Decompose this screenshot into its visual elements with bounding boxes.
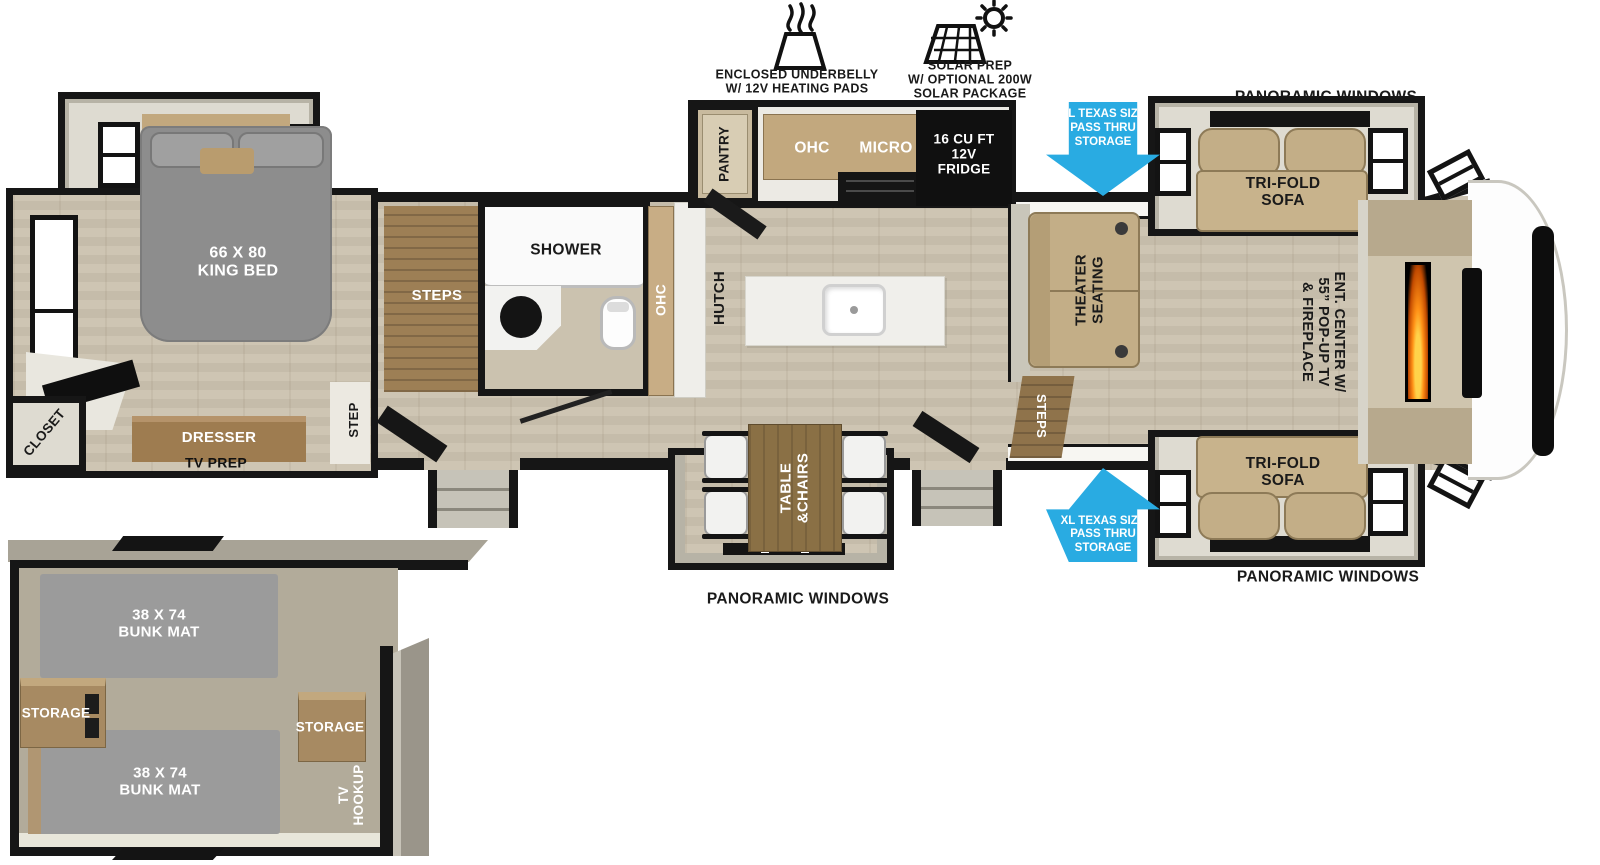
sofa-slide-bottom-window-left bbox=[1155, 470, 1191, 538]
bunkroom-right-wall bbox=[380, 646, 393, 856]
pass-thru-bottom-label: XL TEXAS SIZE PASS THRU STORAGE bbox=[1046, 515, 1160, 556]
bunkroom-right-slab bbox=[393, 638, 429, 856]
panoramic-windows-bottom-center-label: PANORAMIC WINDOWS bbox=[707, 590, 889, 607]
bunkroom-top-vent bbox=[112, 536, 224, 551]
king-bed-label: 66 X 80 KING BED bbox=[198, 244, 279, 279]
toilet bbox=[600, 296, 636, 350]
ent-center-label: ENT. CENTER W/ 55” POP-UP TV & FIREPLACE bbox=[1298, 271, 1346, 392]
dinette-chair-3 bbox=[842, 434, 886, 480]
bunk-storage-left-label: STORAGE bbox=[22, 707, 91, 722]
stairs-label: STEPS bbox=[412, 288, 463, 305]
kitchen-ohc-label: OHC bbox=[794, 139, 829, 156]
living-steps-label: STEPS bbox=[1034, 394, 1048, 438]
bunk-mat-bottom-label: 38 X 74 BUNK MAT bbox=[119, 766, 200, 799]
dinette-chair-1 bbox=[704, 434, 748, 480]
dresser-label: DRESSER bbox=[182, 430, 257, 447]
bunk-storage-right-label: STORAGE bbox=[296, 721, 365, 736]
cooktop bbox=[838, 172, 922, 206]
wall-top-passthru bbox=[1012, 192, 1152, 202]
fridge-label: 16 CU FT 12V FRIDGE bbox=[934, 133, 995, 178]
dinette-chair-2 bbox=[704, 490, 748, 536]
hutch bbox=[674, 202, 706, 398]
bedroom-step-label: STEP bbox=[347, 402, 361, 437]
pass-thru-arrow-bottom: XL TEXAS SIZE PASS THRU STORAGE bbox=[1046, 468, 1160, 562]
bath-sink bbox=[500, 296, 542, 338]
pass-thru-arrow-top: XL TEXAS SIZE PASS THRU STORAGE bbox=[1046, 102, 1160, 196]
bunk-mat-top-label: 38 X 74 BUNK MAT bbox=[118, 608, 199, 641]
entry-steps-2 bbox=[912, 470, 1002, 526]
front-cap-window-band bbox=[1532, 226, 1554, 456]
dinette-table-label: TABLE &CHAIRS bbox=[779, 453, 812, 523]
sofa-slide-bottom-window-right bbox=[1368, 468, 1408, 536]
shower-label: SHOWER bbox=[530, 241, 602, 258]
rv-floorplan: ENCLOSED UNDERBELLY W/ 12V HEATING PADS … bbox=[0, 0, 1600, 865]
pantry-label: PANTRY bbox=[718, 126, 733, 182]
tv-prep-label: TV PREP bbox=[185, 455, 247, 470]
tri-fold-sofa-bottom-label: TRI-FOLD SOFA bbox=[1246, 455, 1321, 489]
panoramic-windows-bottom-right-label: PANORAMIC WINDOWS bbox=[1237, 568, 1419, 585]
bunk-ladder bbox=[28, 748, 41, 834]
entry-steps-1 bbox=[428, 470, 518, 528]
hutch-label: HUTCH bbox=[712, 271, 729, 325]
bunkroom-roof bbox=[8, 540, 488, 562]
king-bed-throw bbox=[200, 148, 254, 174]
tv-hookup-label: TV HOOKUP bbox=[337, 764, 367, 825]
pop-up-tv bbox=[1462, 268, 1482, 398]
bath-ohc-label: OHC bbox=[653, 284, 668, 316]
theater-seating-label: THEATER SEATING bbox=[1074, 254, 1107, 326]
wall-bottom-1 bbox=[372, 458, 424, 470]
sofa-slide-top-window-left bbox=[1155, 128, 1191, 196]
dinette-chair-4 bbox=[842, 490, 886, 536]
solar-prep-label: SOLAR PREP W/ OPTIONAL 200W SOLAR PACKAG… bbox=[908, 59, 1032, 100]
bedroom-slide-window-left bbox=[98, 122, 140, 188]
pass-thru-top-label: XL TEXAS SIZE PASS THRU STORAGE bbox=[1046, 108, 1160, 149]
micro-label: MICRO bbox=[859, 139, 912, 156]
enclosed-underbelly-icon bbox=[748, 0, 848, 70]
bunkroom-bottom-vent bbox=[112, 848, 224, 860]
fireplace bbox=[1405, 262, 1431, 402]
wall-bottom-2 bbox=[520, 458, 670, 470]
island-sink-drain bbox=[850, 306, 858, 314]
sofa-slide-top-window-right bbox=[1368, 128, 1408, 194]
tri-fold-sofa-top-label: TRI-FOLD SOFA bbox=[1246, 175, 1321, 209]
theater-slide-edge bbox=[1008, 204, 1030, 382]
enclosed-underbelly-label: ENCLOSED UNDERBELLY W/ 12V HEATING PADS bbox=[716, 68, 879, 96]
